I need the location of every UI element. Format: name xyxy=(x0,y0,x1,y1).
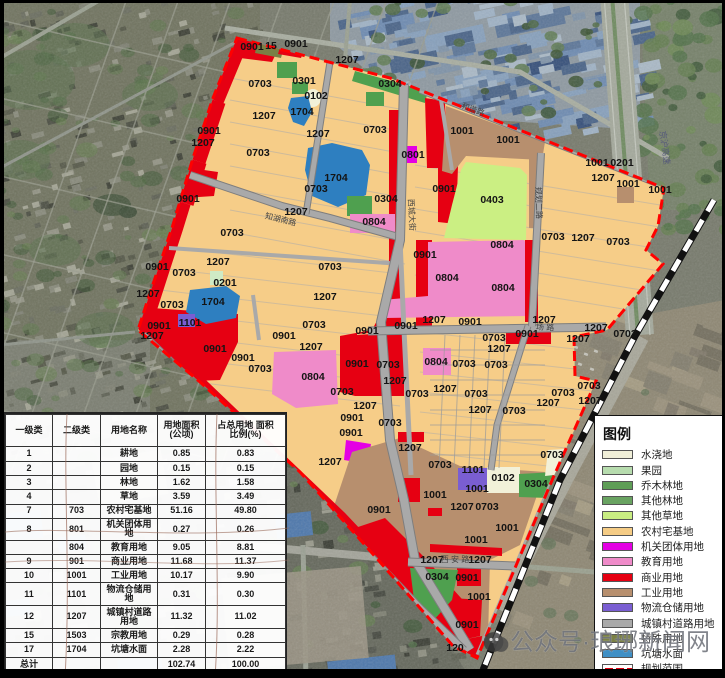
svg-text:1001: 1001 xyxy=(585,157,609,169)
svg-text:0703: 0703 xyxy=(464,388,488,400)
svg-text:1207: 1207 xyxy=(136,288,160,300)
svg-text:0703: 0703 xyxy=(220,227,244,239)
svg-text:0901: 0901 xyxy=(458,316,482,328)
svg-text:0703: 0703 xyxy=(172,267,196,279)
svg-text:1207: 1207 xyxy=(191,137,215,149)
svg-text:0901: 0901 xyxy=(197,125,221,137)
svg-text:0703: 0703 xyxy=(428,459,452,471)
svg-text:1001: 1001 xyxy=(450,125,474,137)
svg-text:0804: 0804 xyxy=(435,272,459,284)
svg-text:0703: 0703 xyxy=(363,124,387,136)
svg-text:1001: 1001 xyxy=(423,489,447,501)
svg-text:0901: 0901 xyxy=(272,330,296,342)
svg-text:0304: 0304 xyxy=(374,193,398,205)
svg-text:1207: 1207 xyxy=(578,395,602,407)
svg-text:0703: 0703 xyxy=(378,417,402,429)
svg-text:0201: 0201 xyxy=(213,277,237,289)
svg-text:0901: 0901 xyxy=(284,38,308,50)
svg-text:0703: 0703 xyxy=(376,359,400,371)
svg-text:1704: 1704 xyxy=(324,172,348,184)
svg-text:1001: 1001 xyxy=(496,134,520,146)
svg-text:0703: 0703 xyxy=(613,328,637,340)
svg-text:0901: 0901 xyxy=(413,249,437,261)
svg-text:1207: 1207 xyxy=(398,442,422,454)
svg-text:1704: 1704 xyxy=(201,296,225,308)
svg-text:1207: 1207 xyxy=(468,404,492,416)
svg-text:0703: 0703 xyxy=(540,449,564,461)
svg-text:0804: 0804 xyxy=(424,356,448,368)
svg-text:120: 120 xyxy=(446,642,464,654)
svg-text:0703: 0703 xyxy=(160,299,184,311)
svg-text:1001: 1001 xyxy=(616,178,640,190)
svg-text:1207: 1207 xyxy=(335,54,359,66)
svg-text:0801: 0801 xyxy=(401,149,425,161)
svg-text:1207: 1207 xyxy=(433,383,457,395)
svg-text:0703: 0703 xyxy=(484,359,508,371)
svg-text:1207: 1207 xyxy=(299,341,323,353)
svg-text:1101: 1101 xyxy=(462,464,485,476)
svg-text:0703: 0703 xyxy=(606,236,630,248)
svg-text:0901: 0901 xyxy=(339,427,363,439)
svg-text:0901: 0901 xyxy=(145,261,169,273)
svg-text:0703: 0703 xyxy=(330,386,354,398)
svg-text:1207: 1207 xyxy=(252,110,276,122)
svg-text:0703: 0703 xyxy=(452,358,476,370)
svg-text:0901: 0901 xyxy=(455,572,479,584)
svg-text:西城大街: 西城大街 xyxy=(406,199,418,231)
svg-text:0102: 0102 xyxy=(491,472,515,484)
svg-text:0901: 0901 xyxy=(240,41,264,53)
svg-text:西 安 路: 西 安 路 xyxy=(441,554,469,564)
svg-text:1207: 1207 xyxy=(571,232,595,244)
svg-text:1001: 1001 xyxy=(467,591,491,603)
svg-text:1207: 1207 xyxy=(450,501,474,513)
svg-text:0304: 0304 xyxy=(378,78,402,90)
svg-text:0804: 0804 xyxy=(362,216,386,228)
svg-text:0804: 0804 xyxy=(491,282,515,294)
svg-text:1207: 1207 xyxy=(487,343,511,355)
svg-text:1704: 1704 xyxy=(290,106,314,118)
svg-text:1207: 1207 xyxy=(422,314,446,326)
svg-text:1207: 1207 xyxy=(591,172,615,184)
svg-text:15: 15 xyxy=(265,40,277,52)
svg-text:0304: 0304 xyxy=(425,571,449,583)
svg-text:1001: 1001 xyxy=(465,483,489,495)
svg-text:1207: 1207 xyxy=(536,397,560,409)
svg-text:0304: 0304 xyxy=(524,478,548,490)
svg-text:0901: 0901 xyxy=(367,504,391,516)
svg-text:0901: 0901 xyxy=(394,320,418,332)
svg-text:0703: 0703 xyxy=(577,380,601,392)
svg-text:1207: 1207 xyxy=(353,400,377,412)
svg-text:规划二路: 规划二路 xyxy=(533,187,544,219)
svg-text:1207: 1207 xyxy=(566,333,590,345)
svg-text:0901: 0901 xyxy=(176,193,200,205)
svg-text:0703: 0703 xyxy=(246,147,270,159)
svg-text:0901: 0901 xyxy=(432,183,456,195)
svg-text:0703: 0703 xyxy=(475,501,499,513)
svg-text:0703: 0703 xyxy=(502,405,526,417)
svg-text:0804: 0804 xyxy=(490,239,514,251)
svg-text:0703: 0703 xyxy=(405,388,429,400)
svg-text:0703: 0703 xyxy=(248,78,272,90)
svg-text:0901: 0901 xyxy=(355,325,379,337)
svg-text:0102: 0102 xyxy=(304,90,328,102)
svg-text:0901: 0901 xyxy=(345,358,369,370)
svg-text:1207: 1207 xyxy=(468,554,492,566)
svg-text:1101: 1101 xyxy=(179,317,202,329)
svg-text:1207: 1207 xyxy=(313,291,337,303)
svg-text:0703: 0703 xyxy=(304,183,328,195)
svg-text:1001: 1001 xyxy=(464,534,488,546)
svg-text:0703: 0703 xyxy=(541,231,565,243)
svg-text:1001: 1001 xyxy=(495,522,519,534)
svg-text:0703: 0703 xyxy=(318,261,342,273)
svg-text:1207: 1207 xyxy=(383,375,407,387)
svg-text:场 路: 场 路 xyxy=(536,322,555,333)
svg-text:1207: 1207 xyxy=(306,128,330,140)
svg-text:0201: 0201 xyxy=(610,157,634,169)
svg-text:0901: 0901 xyxy=(455,619,479,631)
svg-text:1207: 1207 xyxy=(206,256,230,268)
svg-text:0301: 0301 xyxy=(292,75,316,87)
svg-text:0901: 0901 xyxy=(340,412,364,424)
svg-text:1207: 1207 xyxy=(318,456,342,468)
svg-text:0703: 0703 xyxy=(248,363,272,375)
svg-text:0403: 0403 xyxy=(480,194,504,206)
svg-text:0703: 0703 xyxy=(302,319,326,331)
svg-text:1207: 1207 xyxy=(140,330,164,342)
svg-text:1001: 1001 xyxy=(648,184,672,196)
svg-text:0901: 0901 xyxy=(203,343,227,355)
svg-text:0804: 0804 xyxy=(301,371,325,383)
